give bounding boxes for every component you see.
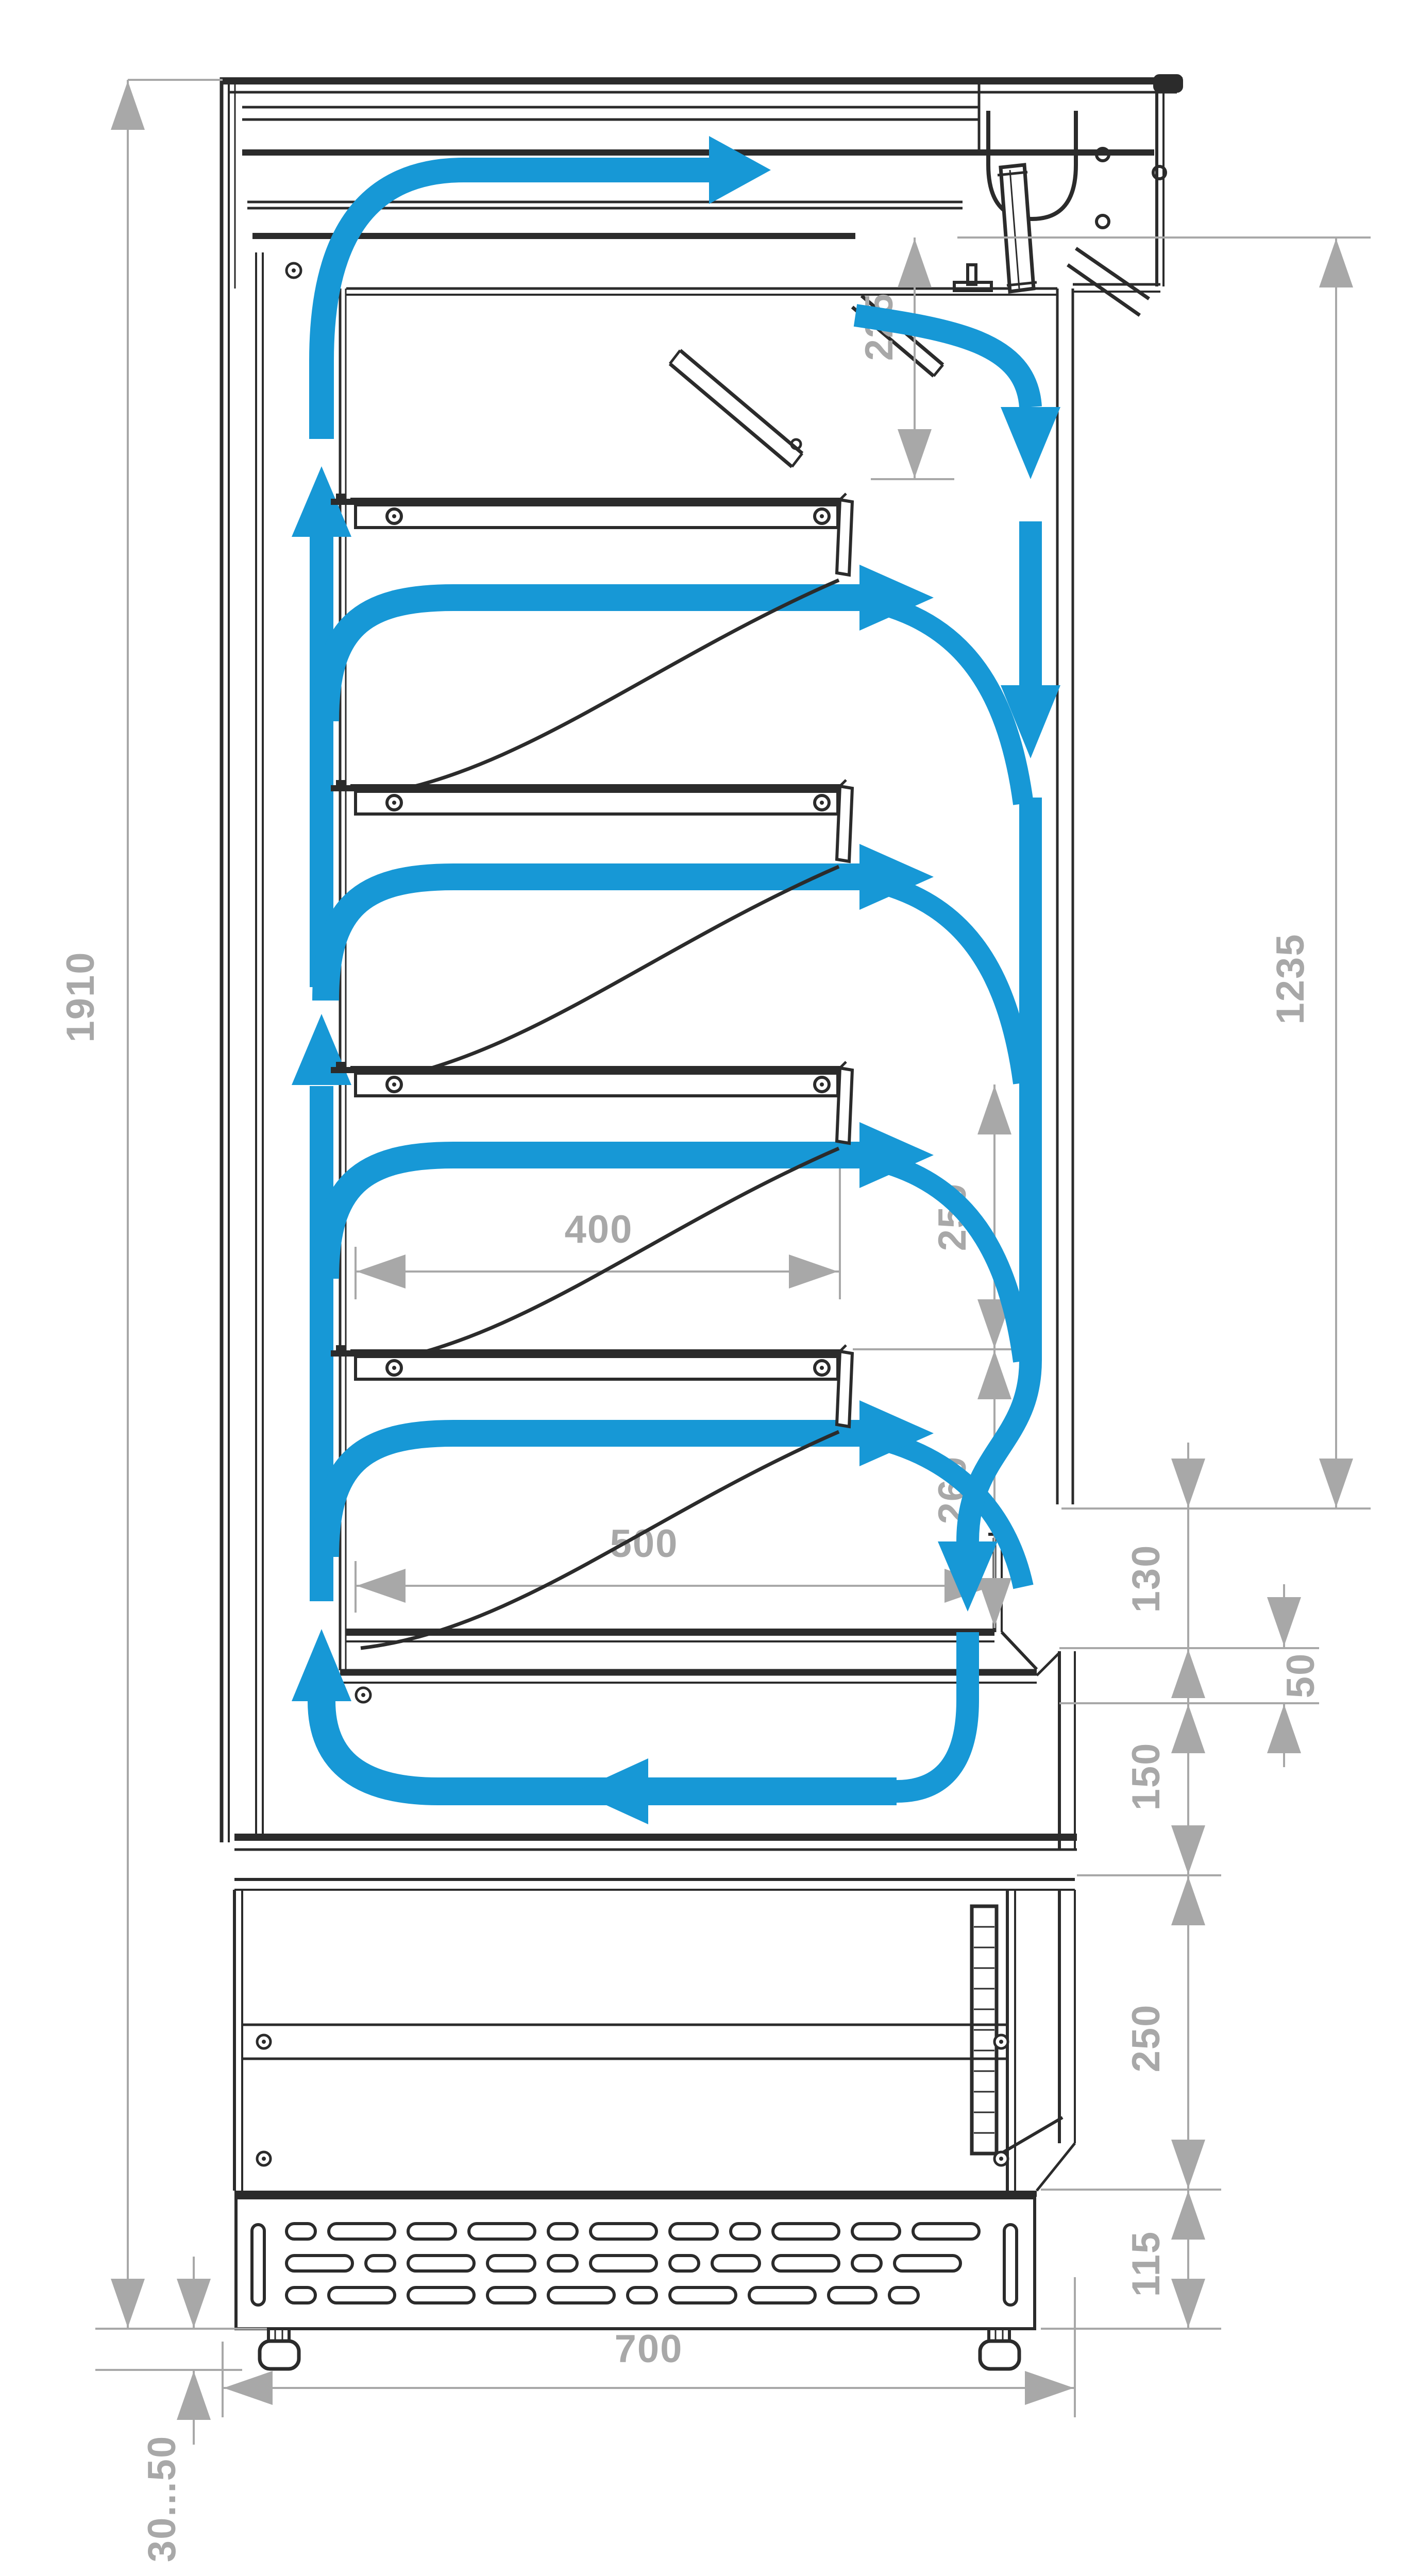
grille-slot [852,2224,900,2239]
grille-slot [773,2224,839,2239]
grille-slot [548,2287,614,2303]
dim-arrowhead [177,2279,211,2328]
dim-arrowhead [1171,1825,1205,1874]
grille-slot [895,2256,960,2271]
dim-arrowhead [977,1350,1011,1399]
shelf-bracket [331,785,355,791]
dim-arrowhead [1171,1649,1205,1698]
shelf [331,1345,852,1648]
dim-arrowhead [1171,1459,1205,1507]
grille-slot [408,2256,474,2271]
grille-slot [670,2224,717,2239]
bottom-well [340,1534,1037,1683]
technical-diagram: 1910 30...50 225 1235 250 400 260 500 13… [0,0,1417,2576]
dim-arrowhead [1267,1597,1301,1646]
grille-slot [829,2287,876,2303]
dim-arrowhead [1171,2140,1205,2189]
right-arrow-icon [709,136,771,204]
shelf [331,780,852,1083]
grille-slot [487,2256,535,2271]
shelf-bracket [331,499,355,505]
grille-slot [286,2256,352,2271]
dim-arrowhead [224,2371,273,2405]
dim-label-intake-gap: 130 [1124,1545,1168,1613]
merge-curve [849,877,1023,1083]
dim-arrowhead [898,239,932,287]
grille-slot [408,2224,456,2239]
price-strip [837,1351,852,1427]
down-arrow-icon [1001,407,1060,479]
corner-cap [1153,74,1183,93]
dim-arrowhead [1267,1704,1301,1753]
dim-arrowhead [111,2279,145,2328]
grille-slot [852,2256,881,2271]
shelf [331,494,852,796]
grille-slot [487,2287,535,2303]
price-strip [837,786,852,861]
grille-slot [548,2256,577,2271]
dim-arrowhead [1025,2371,1074,2405]
grille-slot [889,2287,918,2303]
shelf-cable [361,580,839,796]
price-strip [837,1068,852,1143]
up-arrow-icon [292,1629,351,1701]
air-curtain-ribbon [968,798,1031,1541]
shelf-cable [361,867,839,1083]
dim-label-overall-height: 1910 [59,951,103,1042]
shelf-cable [361,1148,839,1365]
grille-slot [408,2287,474,2303]
grille-slot [749,2287,815,2303]
grille-slot [712,2256,760,2271]
adjustable-foot [260,2329,299,2369]
shelf-bracket [331,1350,355,1357]
grille-slot [591,2224,656,2239]
dim-label-depth: 700 [615,2327,683,2371]
dim-arrowhead [1319,1459,1353,1507]
dimension-annotations [95,80,1371,2445]
grille-slot [773,2256,839,2271]
dim-label-grille-height: 115 [1124,2231,1168,2297]
dim-label-shelf-depth: 400 [565,1208,633,1251]
dim-arrowhead [1171,2279,1205,2328]
dim-label-machine-height: 250 [1124,2004,1168,2073]
grille-slot [469,2224,535,2239]
up-arrow-icon [292,1014,351,1085]
dim-arrowhead [1171,2191,1205,2240]
grille-slot [591,2256,656,2271]
price-strip [837,500,852,575]
dim-arrowhead [977,1086,1011,1134]
grille-slot [670,2256,699,2271]
grille-slot [286,2224,315,2239]
grille-slot [670,2287,736,2303]
grille-slot [329,2287,395,2303]
left-arrow-icon [576,1758,648,1824]
adjustable-foot [980,2329,1019,2369]
grille-slot [548,2224,577,2239]
ventilation-grille [234,2194,1037,2329]
grille-slot [286,2287,315,2303]
shelf-bracket [331,1067,355,1073]
dim-arrowhead [898,429,932,478]
grille-slot [366,2256,395,2271]
dim-label-lip: 50 [1279,1653,1323,1699]
dim-arrowhead [1171,1876,1205,1925]
dim-arrowhead [111,81,145,130]
grille-slot [731,2224,760,2239]
grille-slot [628,2287,656,2303]
dim-arrowhead [1319,239,1353,287]
machine-compartment [234,1879,1075,2191]
dim-label-return-zone: 150 [1124,1742,1168,1811]
grille-slot [913,2224,979,2239]
dim-arrowhead [789,1255,838,1289]
shelf-cable [361,1432,839,1648]
merge-curve [849,598,1023,804]
dim-arrowhead [177,2371,211,2420]
dim-arrowhead [1171,1704,1205,1753]
duct-to-canopy-ribbon [322,170,709,439]
evaporator-unit [670,350,802,467]
grille-slot [329,2224,395,2239]
dim-arrowhead [357,1255,406,1289]
dim-label-curtain-height: 1235 [1269,933,1312,1024]
dim-arrowhead [357,1569,406,1603]
dim-label-feet-height: 30...50 [140,2435,184,2562]
shelf-airflow-arrow [326,565,934,721]
